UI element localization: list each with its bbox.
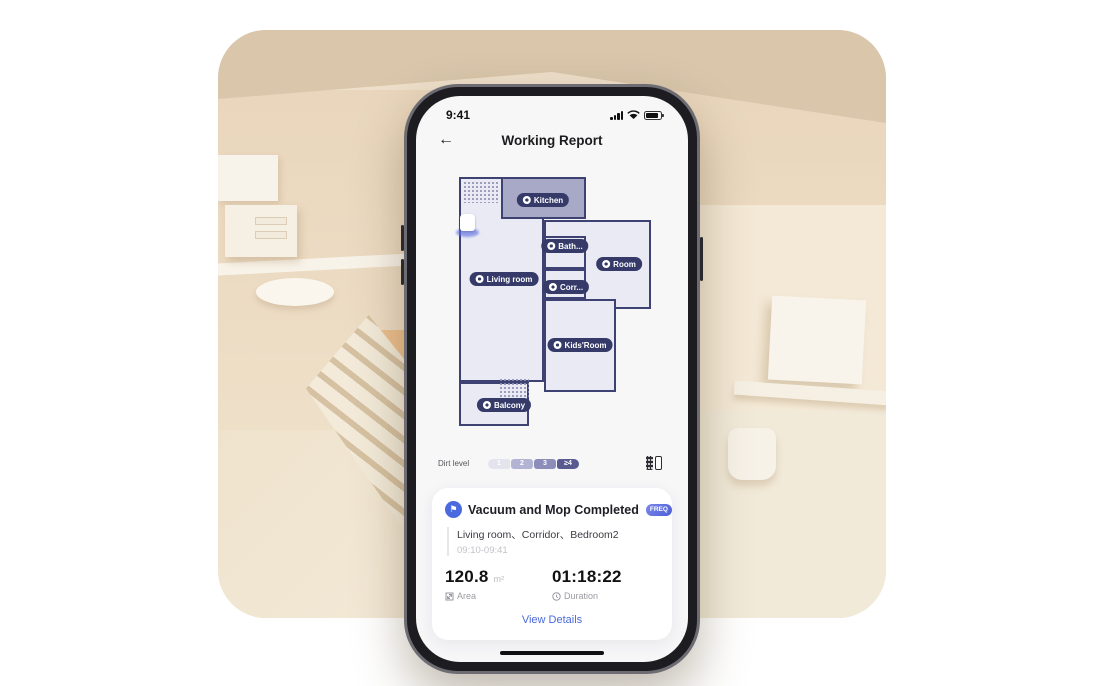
- room-label-kids-room[interactable]: Kids'Room: [548, 338, 613, 352]
- cellular-signal-icon: [610, 111, 623, 120]
- status-time: 9:41: [446, 108, 470, 122]
- room-camera-icon: [549, 283, 557, 291]
- view-details-link[interactable]: View Details: [445, 614, 659, 626]
- report-time-range: 09:10-09:41: [457, 545, 659, 556]
- dirt-level-2: 2: [511, 459, 533, 469]
- dirt-level-1: 1: [488, 459, 510, 469]
- room-camera-icon: [476, 275, 484, 283]
- map-tiled-area-pattern: [463, 181, 499, 203]
- area-value: 120.8: [445, 567, 489, 586]
- room-camera-icon: [547, 242, 555, 250]
- room-label-bath[interactable]: Bath...: [541, 239, 588, 253]
- map-split-view-icon[interactable]: [646, 456, 662, 470]
- stat-area: 120.8 m² Area: [445, 567, 552, 601]
- report-stats: 120.8 m² Area 01:18:22: [445, 567, 659, 601]
- phone-mockup: 9:41 ← Working Report: [404, 84, 700, 674]
- phone-power-button: [700, 237, 703, 281]
- room-label-balcony[interactable]: Balcony: [477, 398, 531, 412]
- home-indicator[interactable]: [500, 651, 604, 656]
- scene-cabinet: [225, 205, 297, 257]
- wifi-icon: [627, 110, 640, 120]
- page-title: Working Report: [416, 133, 688, 148]
- room-camera-icon: [602, 260, 610, 268]
- map-balcony-pattern: [499, 378, 529, 398]
- scene-table: [256, 278, 334, 306]
- clock-icon: [552, 592, 561, 601]
- report-card-header: ⚑ Vacuum and Mop Completed FREQ: [445, 501, 659, 518]
- dirt-level-4plus: ≥4: [557, 459, 579, 469]
- robot-vacuum-icon[interactable]: [460, 214, 475, 231]
- duration-value: 01:18:22: [552, 567, 659, 587]
- app-screen: 9:41 ← Working Report: [416, 96, 688, 662]
- dirt-level-row: Dirt level 1 2 3 ≥4: [416, 456, 688, 472]
- area-label: Area: [457, 591, 476, 601]
- room-label-kitchen[interactable]: Kitchen: [517, 193, 569, 207]
- report-rooms: Living room、Corridor、Bedroom2: [457, 527, 659, 542]
- scene-wall-panel: [218, 155, 278, 201]
- scene-stool: [728, 428, 776, 480]
- room-label-corridor[interactable]: Corr...: [543, 280, 589, 294]
- status-icons: [610, 110, 662, 120]
- cleaning-map[interactable]: Kitchen Bath... Room Living room Corr...…: [456, 174, 656, 432]
- report-rooms-block: Living room、Corridor、Bedroom2 09:10-09:4…: [447, 527, 659, 556]
- stat-duration: 01:18:22 Duration: [552, 567, 659, 601]
- status-bar: 9:41: [416, 104, 688, 126]
- report-title: Vacuum and Mop Completed: [468, 503, 639, 517]
- room-camera-icon: [483, 401, 491, 409]
- dirt-level-scale: 1 2 3 ≥4: [488, 459, 579, 469]
- duration-label: Duration: [564, 591, 598, 601]
- area-icon: [445, 592, 454, 601]
- dirt-level-label: Dirt level: [438, 459, 469, 468]
- frequency-badge: FREQ: [646, 504, 672, 516]
- battery-icon: [644, 111, 662, 120]
- phone-volume-up-button: [401, 225, 404, 251]
- page: 9:41 ← Working Report: [0, 0, 1100, 686]
- flag-icon: ⚑: [445, 501, 462, 518]
- room-label-room[interactable]: Room: [596, 257, 642, 271]
- report-card[interactable]: ⚑ Vacuum and Mop Completed FREQ Living r…: [432, 488, 672, 640]
- scene-tv-panel: [768, 296, 866, 385]
- dirt-level-3: 3: [534, 459, 556, 469]
- nav-bar: ← Working Report: [416, 128, 688, 156]
- room-label-living-room[interactable]: Living room: [470, 272, 539, 286]
- phone-volume-down-button: [401, 259, 404, 285]
- room-camera-icon: [523, 196, 531, 204]
- area-unit: m²: [493, 574, 504, 584]
- room-camera-icon: [554, 341, 562, 349]
